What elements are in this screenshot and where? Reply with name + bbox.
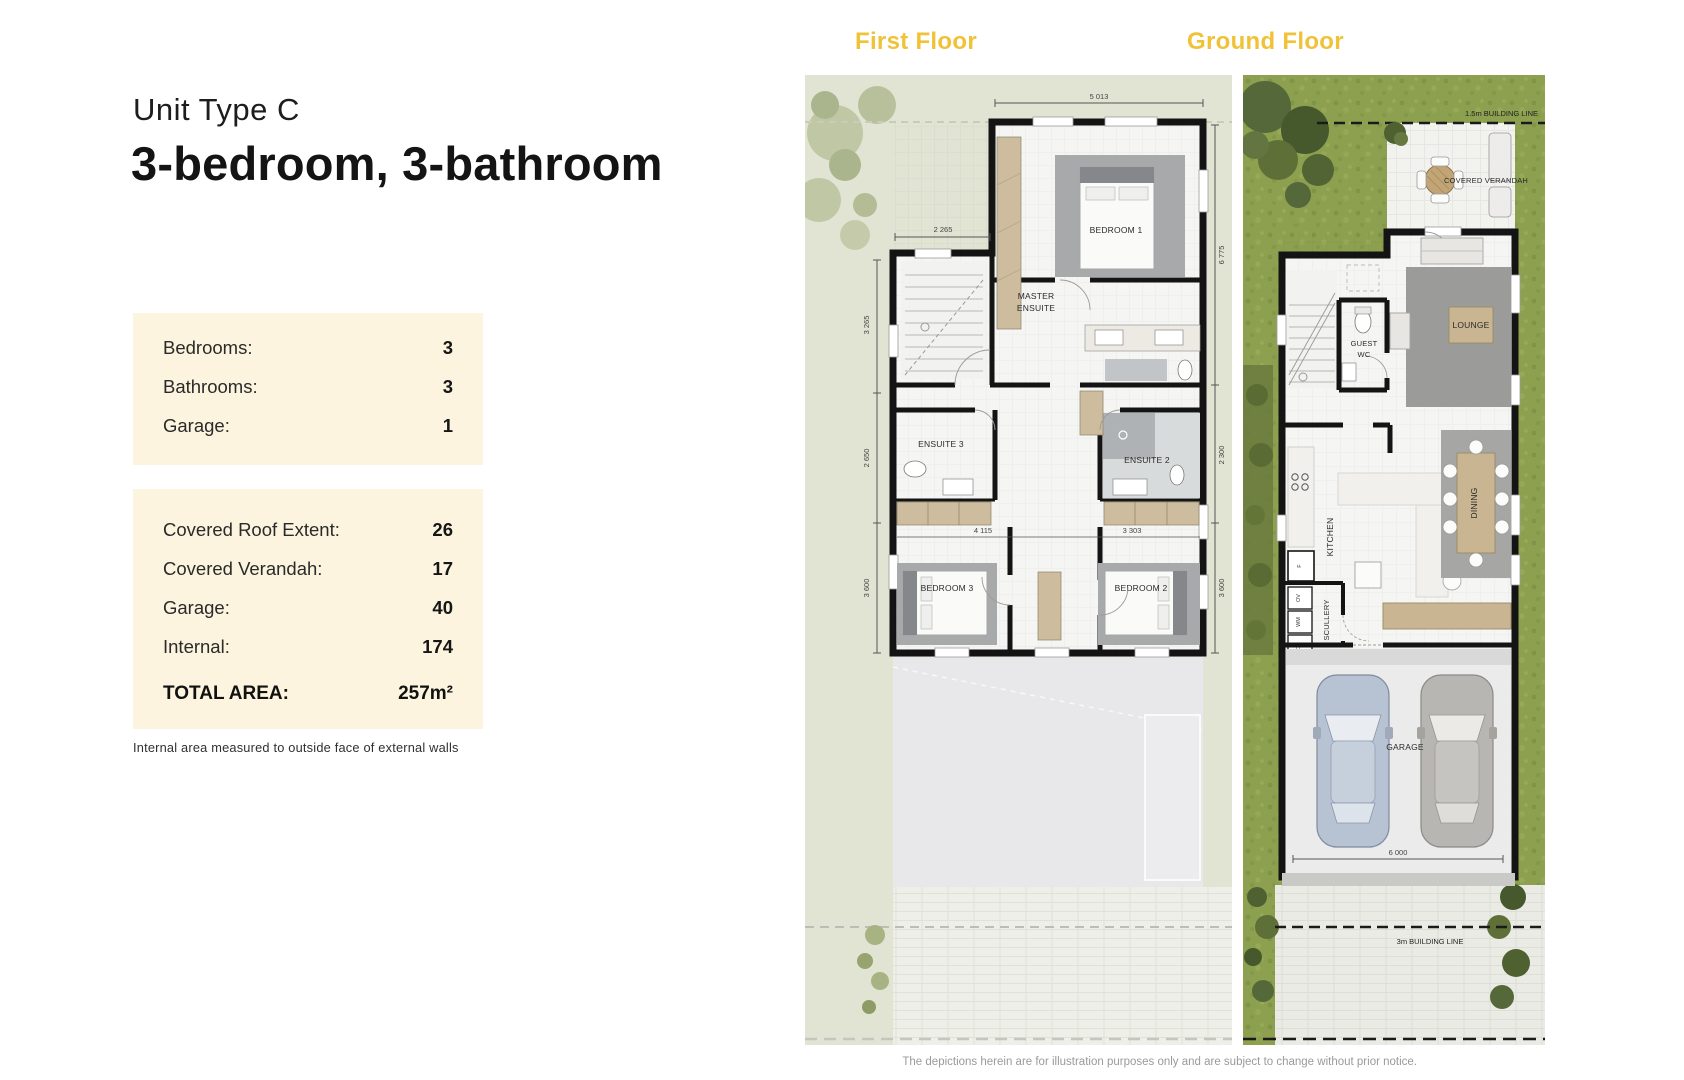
oven-label: OV xyxy=(1296,594,1302,602)
guest-wc-label-2: WC xyxy=(1358,350,1371,359)
verandah-label: COVERED VERANDAH xyxy=(1444,176,1528,185)
areas-panel: Covered Roof Extent: 26 Covered Verandah… xyxy=(133,489,483,729)
page-title: 3-bedroom, 3-bathroom xyxy=(131,136,663,191)
area-value: 174 xyxy=(422,636,453,658)
roof-walkway xyxy=(1145,715,1200,880)
first-floor-plan: BEDROOM 1 MASTER ENSUITE ENSUITE 3 ENSUI… xyxy=(805,75,1232,1045)
measurement-footnote: Internal area measured to outside face o… xyxy=(133,740,459,755)
specs-panel: Bedrooms: 3 Bathrooms: 3 Garage: 1 xyxy=(133,313,483,465)
spec-row-garage: Garage: 1 xyxy=(163,415,453,437)
bedroom3-label: BEDROOM 3 xyxy=(921,583,974,593)
building-line-top-label: 1.5m BUILDING LINE xyxy=(1465,109,1538,118)
bedroom2-label: BEDROOM 2 xyxy=(1115,583,1168,593)
guest-wc-label-1: GUEST xyxy=(1351,339,1378,348)
area-label: Internal: xyxy=(163,636,230,658)
dim-right-1: 6 775 xyxy=(1217,246,1226,265)
area-label: Covered Verandah: xyxy=(163,558,322,580)
garage-apron xyxy=(1282,873,1515,886)
spec-label: Bathrooms: xyxy=(163,376,258,398)
washer-label: WM xyxy=(1296,617,1302,627)
dim-garage-width: 6 000 xyxy=(1389,848,1408,857)
dim-right-3: 3 600 xyxy=(1217,579,1226,598)
master-ensuite-label-2: ENSUITE xyxy=(1017,303,1055,313)
dim-inner-right: 3 303 xyxy=(1123,526,1142,535)
area-label: Covered Roof Extent: xyxy=(163,519,340,541)
area-value: 40 xyxy=(432,597,453,619)
garage-label: GARAGE xyxy=(1386,742,1424,752)
ground-floor-plan: 1.5m BUILDING LINE COVERED VERANDAH xyxy=(1243,75,1545,1045)
area-value: 26 xyxy=(432,519,453,541)
dim-inner-left: 4 115 xyxy=(974,526,992,535)
spec-row-bathrooms: Bathrooms: 3 xyxy=(163,376,453,398)
total-area-value: 257m² xyxy=(398,683,453,705)
total-area-row: TOTAL AREA: 257m² xyxy=(163,683,453,705)
car-blue xyxy=(1313,675,1393,847)
area-label: Garage: xyxy=(163,597,230,619)
bedroom3-furniture xyxy=(897,563,997,645)
dim-right-2: 2 300 xyxy=(1217,446,1226,465)
street-paving xyxy=(893,887,1232,1045)
lounge-label: LOUNGE xyxy=(1452,320,1489,330)
staircase xyxy=(901,261,986,379)
dim-top: 5 013 xyxy=(1090,92,1109,101)
first-floor-svg: BEDROOM 1 MASTER ENSUITE ENSUITE 3 ENSUI… xyxy=(805,75,1232,1045)
spec-row-bedrooms: Bedrooms: 3 xyxy=(163,337,453,359)
first-floor-heading: First Floor xyxy=(855,28,977,56)
kitchen-label: KITCHEN xyxy=(1325,518,1335,557)
area-row-roof: Covered Roof Extent: 26 xyxy=(163,519,453,541)
area-row-verandah: Covered Verandah: 17 xyxy=(163,558,453,580)
hedge-left xyxy=(1243,365,1273,655)
unit-type-title: Unit Type C xyxy=(133,92,300,128)
master-ensuite-label-1: MASTER xyxy=(1018,291,1055,301)
bedroom1-label: BEDROOM 1 xyxy=(1090,225,1143,235)
bedroom2-furniture xyxy=(1098,563,1200,645)
spec-value: 1 xyxy=(443,415,453,437)
scullery-label: SCULLERY xyxy=(1322,599,1331,640)
total-area-label: TOTAL AREA: xyxy=(163,683,289,705)
disclaimer-text: The depictions herein are for illustrati… xyxy=(805,1056,1417,1068)
ensuite3-label: ENSUITE 3 xyxy=(918,439,964,449)
hall-cabinet xyxy=(1383,603,1511,629)
building-line-bottom-label: 3m BUILDING LINE xyxy=(1397,937,1464,946)
dining-label: DINING xyxy=(1469,488,1479,519)
car-gray xyxy=(1417,675,1497,847)
spec-label: Bedrooms: xyxy=(163,337,252,359)
area-value: 17 xyxy=(432,558,453,580)
area-row-internal: Internal: 174 xyxy=(163,636,453,658)
ground-floor-heading: Ground Floor xyxy=(1187,28,1344,56)
dim-left-1: 3 265 xyxy=(862,316,871,335)
area-row-garage: Garage: 40 xyxy=(163,597,453,619)
dim-left-2: 2 650 xyxy=(862,449,871,468)
ground-floor-svg: 1.5m BUILDING LINE COVERED VERANDAH xyxy=(1243,75,1545,1045)
spec-value: 3 xyxy=(443,337,453,359)
dim-stair-width: 2 265 xyxy=(934,225,953,234)
dim-left-3: 3 600 xyxy=(862,579,871,598)
spec-value: 3 xyxy=(443,376,453,398)
ensuite2-label: ENSUITE 2 xyxy=(1124,455,1170,465)
brochure-page: Unit Type C 3-bedroom, 3-bathroom Bedroo… xyxy=(0,0,1684,1080)
spec-label: Garage: xyxy=(163,415,230,437)
